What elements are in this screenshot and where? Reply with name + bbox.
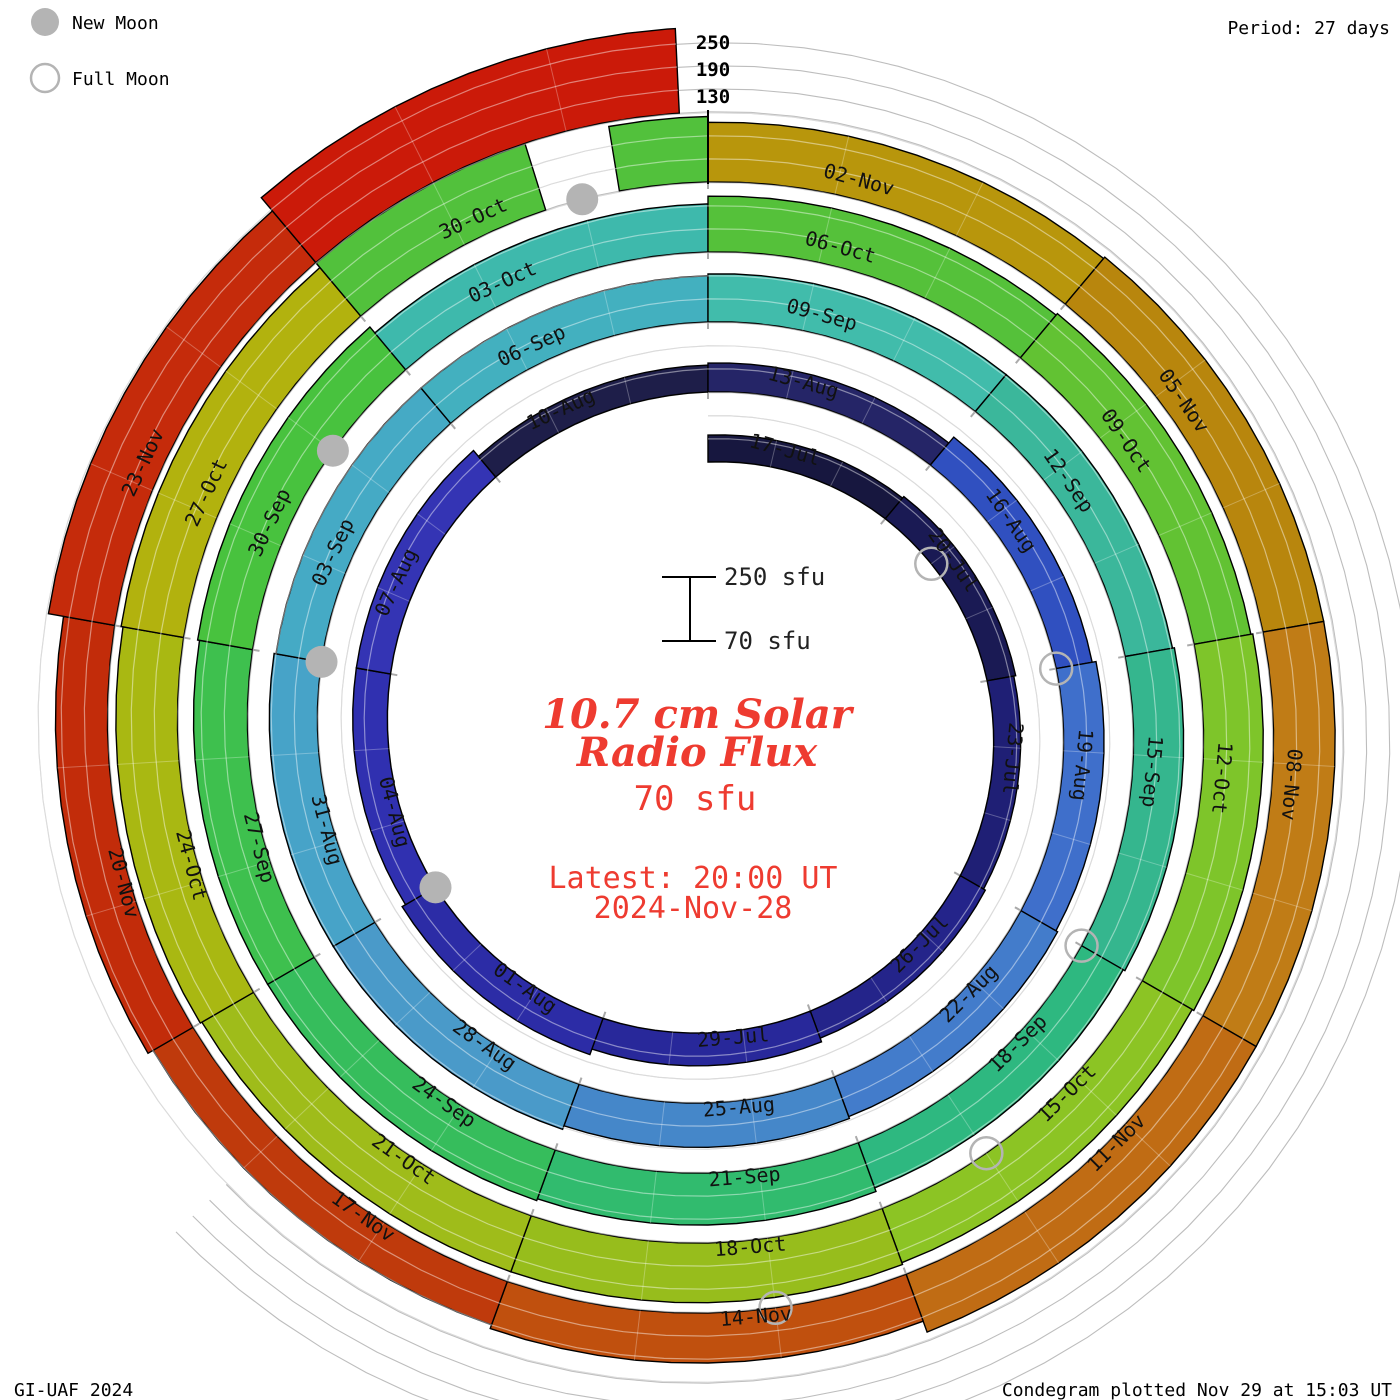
plotted-label: Condegram plotted Nov 29 at 15:03 UT — [1002, 1380, 1392, 1400]
center-annotation: 10.7 cm Solar Radio Flux 70 sfu Latest: … — [542, 691, 855, 926]
flux-axis-top-labels: 250 190 130 — [696, 32, 730, 108]
new-moon-icon — [31, 8, 59, 36]
flux-tick-250: 250 — [696, 32, 730, 54]
scalebar-top-label: 250 sfu — [724, 563, 825, 591]
credit-label: GI-UAF 2024 — [14, 1380, 133, 1400]
chart-title-line2: Radio Flux — [576, 729, 819, 776]
segment-bar-30-Oct — [609, 117, 708, 192]
full-moon-label: Full Moon — [72, 69, 170, 90]
flux-tick-130: 130 — [696, 86, 730, 108]
new-moon-marker-02-Oct — [317, 435, 349, 467]
condegram-chart: 17-Jul20-Jul23-Jul26-Jul29-Jul01-Aug04-A… — [0, 0, 1400, 1400]
segment-bar-10-Aug — [478, 365, 708, 477]
new-moon-marker-03-Sep — [306, 646, 338, 678]
legend: New Moon Full Moon — [31, 8, 170, 92]
full-moon-icon — [31, 64, 59, 92]
condegram-page: { "legend": { "new_moon_label": "New Moo… — [0, 0, 1400, 1400]
latest-line2: 2024-Nov-28 — [594, 891, 793, 926]
period-label: Period: 27 days — [1227, 18, 1390, 39]
segment-bar-21-Sep — [537, 1143, 876, 1225]
new-moon-marker-01-Nov — [566, 183, 598, 215]
flux-tick-190: 190 — [696, 59, 730, 81]
new-moon-marker-04-Aug — [419, 871, 451, 903]
scalebar-bottom-label: 70 sfu — [724, 627, 811, 655]
current-flux-value: 70 sfu — [634, 779, 757, 819]
flux-scalebar — [662, 577, 716, 641]
new-moon-label: New Moon — [72, 13, 159, 34]
